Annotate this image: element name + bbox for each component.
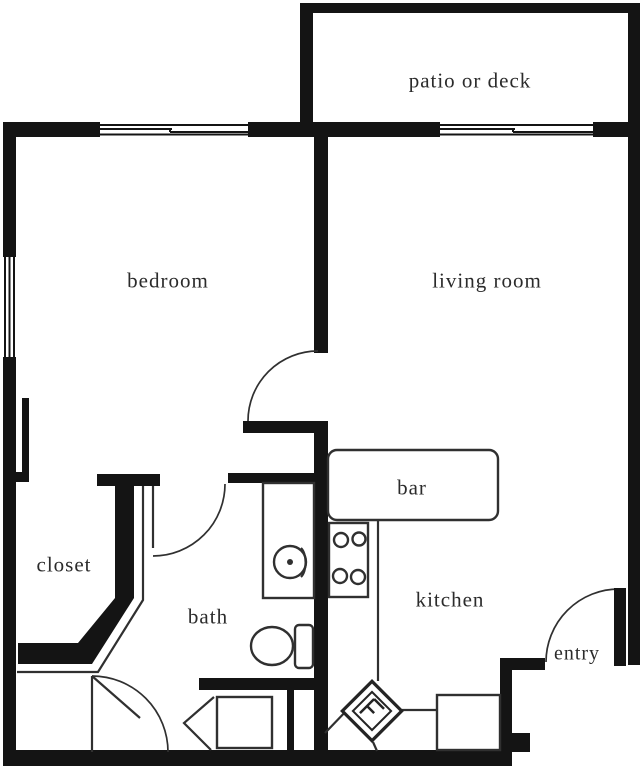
fridge-counter xyxy=(437,695,500,750)
room-label-bedroom: bedroom xyxy=(127,269,209,294)
right-wall xyxy=(628,3,640,665)
counter-edge-bottom xyxy=(373,742,377,751)
room-label-bath: bath xyxy=(188,605,228,630)
room-label-closet: closet xyxy=(37,553,92,578)
room-label-entry: entry xyxy=(554,643,600,666)
stove-burner xyxy=(334,533,348,547)
wall-chase-bottom xyxy=(7,472,29,482)
kitchen-corner-sink xyxy=(342,681,401,740)
bath-north-wall xyxy=(228,473,318,483)
patio-left-wall xyxy=(300,3,313,123)
divider-wall-lower xyxy=(314,421,328,752)
stove-burner xyxy=(351,570,365,584)
room-label-bar: bar xyxy=(397,476,427,501)
entry-door-leaf xyxy=(614,588,626,666)
left-wall-lower xyxy=(3,357,16,766)
room-label-kitchen: kitchen xyxy=(416,588,485,613)
shower-wall-stub xyxy=(287,690,294,750)
bathroom-fixtures xyxy=(217,483,314,748)
hall-closet-door-diagonal xyxy=(92,676,140,718)
entry-step-wall-vertical xyxy=(500,658,512,752)
bedroom-side-window xyxy=(5,257,14,357)
bottom-wall xyxy=(3,750,512,766)
windows xyxy=(5,125,593,357)
toilet-tank xyxy=(295,625,313,668)
vanity-counter xyxy=(263,483,314,598)
bath-sink-drain xyxy=(287,559,293,565)
floor-plan-drawing xyxy=(0,0,640,768)
divider-wall-upper xyxy=(314,137,328,353)
bath-door-arc xyxy=(153,484,225,556)
floor-plan: patio or deck bedroom living room closet… xyxy=(0,0,640,768)
room-label-living-room: living room xyxy=(432,269,542,294)
bifold-door xyxy=(184,697,214,750)
stove-burner xyxy=(353,533,366,546)
top-wall-left-segment xyxy=(3,122,100,137)
bedroom-window xyxy=(100,125,248,135)
left-wall-upper xyxy=(3,122,16,257)
stove-burner xyxy=(333,569,347,583)
bath-south-wall xyxy=(199,678,317,690)
wall-chase-vertical xyxy=(22,398,29,478)
patio-top-wall xyxy=(300,3,640,13)
bedroom-door-arc xyxy=(248,351,318,421)
entry-corner-block xyxy=(512,733,530,752)
top-wall-middle-segment xyxy=(248,122,440,137)
bedroom-south-wall xyxy=(243,421,318,433)
room-label-patio: patio or deck xyxy=(409,69,532,94)
living-room-window xyxy=(440,125,593,135)
toilet-bowl xyxy=(251,627,293,665)
shower xyxy=(217,697,272,748)
